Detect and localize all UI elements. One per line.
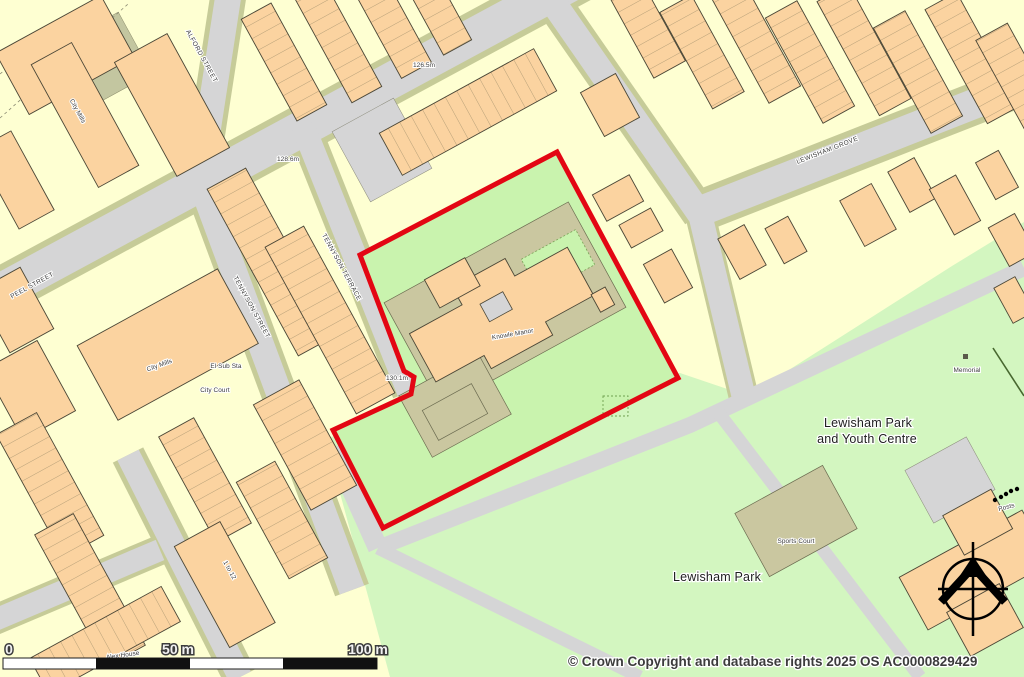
label-city-court: City Court: [200, 387, 230, 394]
spot-height-130-1: 130.1m: [386, 375, 409, 382]
label-lewisham-park: Lewisham Park: [673, 570, 762, 584]
copyright-notice: © Crown Copyright and database rights 20…: [568, 654, 977, 669]
label-youth-centre-line2: and Youth Centre: [817, 432, 917, 446]
memorial-marker: [963, 354, 968, 359]
label-memorial: Memorial: [953, 367, 980, 374]
label-youth-centre-line1: Lewisham Park: [824, 416, 913, 430]
map-viewport[interactable]: ALFORD STREET PEEL STREET TENNYSON STREE…: [0, 0, 1024, 677]
label-sports-court: Sports Court: [777, 538, 814, 545]
scale-hundred-label: 100 m: [348, 641, 388, 657]
spot-height-128-6: 128.6m: [277, 156, 300, 163]
label-el-sub-sta: El Sub Sta: [210, 363, 242, 370]
spot-height-126-5: 126.5m: [413, 62, 436, 69]
os-site-plan-map: ALFORD STREET PEEL STREET TENNYSON STREE…: [0, 0, 1024, 677]
scale-zero-label: 0: [5, 641, 13, 657]
scale-fifty-label: 50 m: [162, 641, 194, 657]
